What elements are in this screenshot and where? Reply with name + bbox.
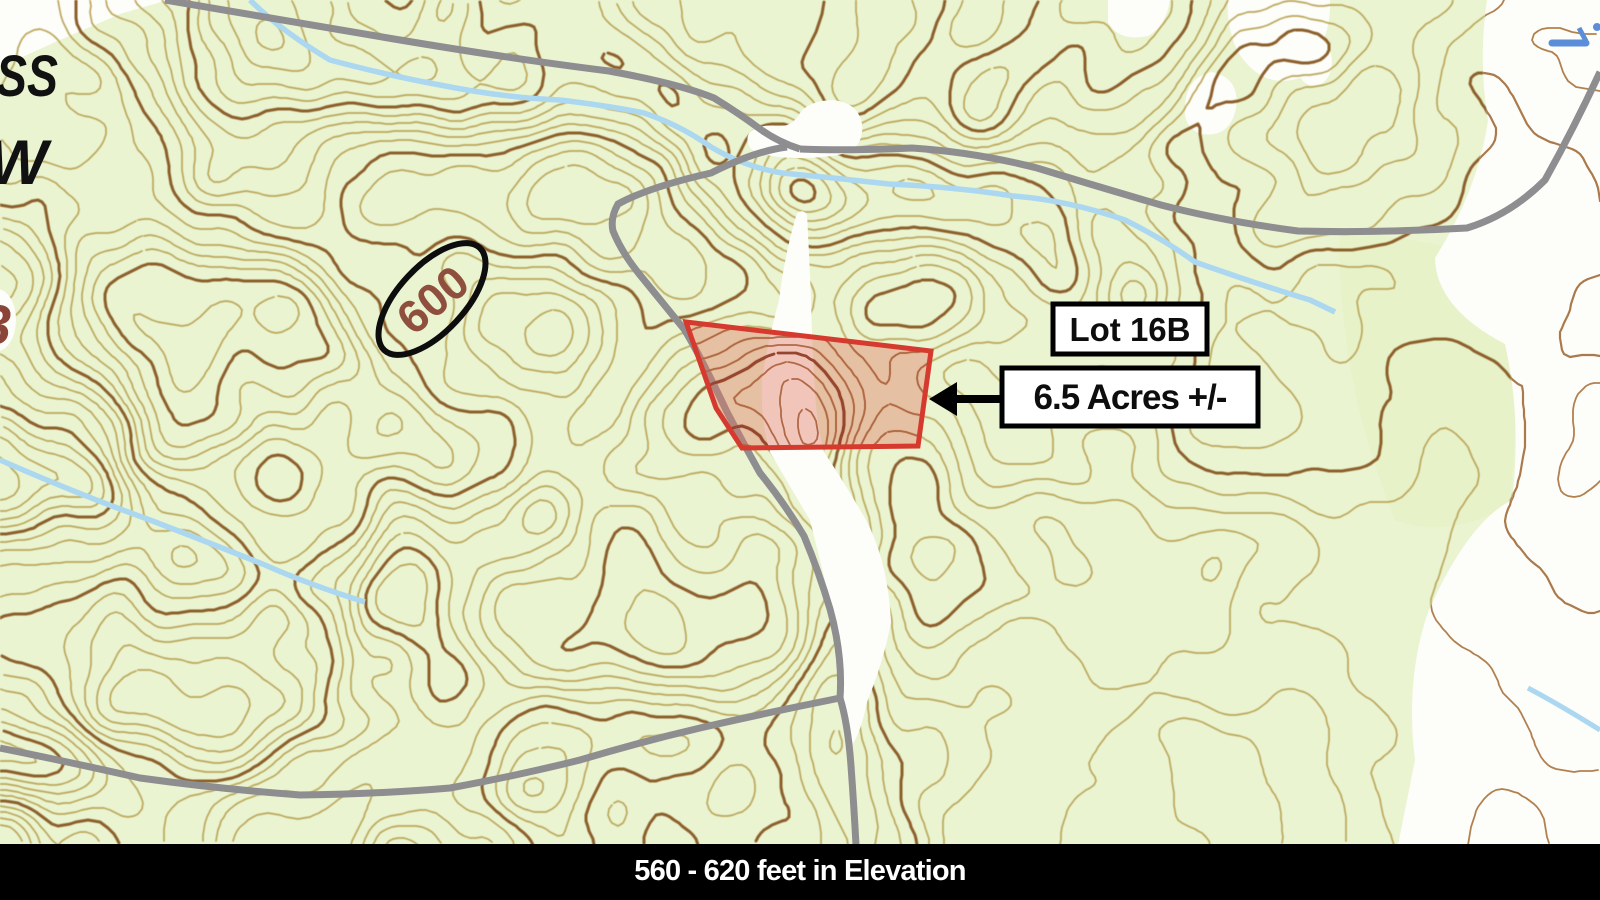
svg-text:6.5 Acres +/-: 6.5 Acres +/- [1034,378,1227,417]
svg-text:Lot 16B: Lot 16B [1069,311,1190,348]
svg-text:3: 3 [0,293,11,356]
svg-text:SS: SS [0,44,58,109]
svg-text:W: W [0,128,52,198]
svg-text:560 - 620 feet in Elevation: 560 - 620 feet in Elevation [634,855,965,887]
